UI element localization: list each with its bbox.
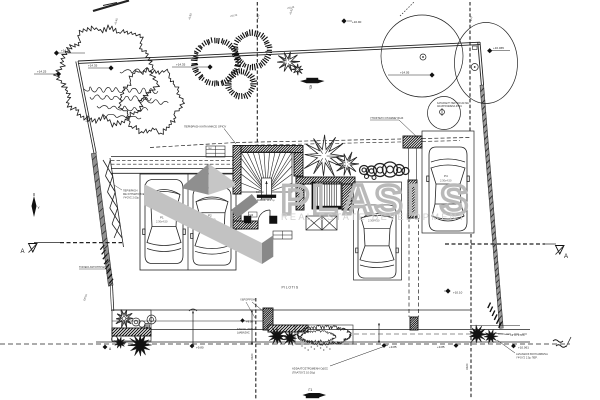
svg-text:ΑΝΑΡΡΙΧΩΜΕΝΑ ΦΥΤΑ: ΑΝΑΡΡΙΧΩΜΕΝΑ ΦΥΤΑ [437,105,462,108]
svg-text:+16.90: +16.90 [352,20,362,24]
svg-text:ΛΙΓΟΥΣΤΡΑ: ΛΙΓΟΥΣΤΡΑ [510,333,525,337]
svg-text:ΤΟΙΧΕΙΟ ΑΝΤΙΣΤΗΡΙΞΗΣ: ΤΟΙΧΕΙΟ ΑΝΤΙΣΤΗΡΙΞΗΣ [79,266,108,269]
svg-text:+14.95: +14.95 [61,49,71,53]
svg-text:+10.061: +10.061 [518,346,529,350]
svg-text:ΥΠΟΣΤΕΓΟ ΣΤΑΘΜΕΥΣΗΣ: ΥΠΟΣΤΕΓΟ ΣΤΑΘΜΕΥΣΗΣ [370,116,404,120]
svg-text:+14.35: +14.35 [88,64,98,68]
svg-text:P1: P1 [160,216,164,220]
svg-text:+14.05: +14.05 [400,71,410,75]
svg-text:2.30x4.50: 2.30x4.50 [156,220,168,224]
svg-text:ΥΨΟΥΣ 2.5μ ΠΕΡ.: ΥΨΟΥΣ 2.5μ ΠΕΡ. [516,356,538,360]
svg-text:ΥΨΟΥΣ 2.00μ: ΥΨΟΥΣ 2.00μ [123,197,139,200]
svg-text:ΒΟΗΘ.: ΒΟΗΘ. [256,190,265,194]
svg-text:+16.065: +16.065 [493,46,504,50]
svg-text:ΑΙΛΑΝΘΟΣ ΒΟΥΚΑΜΒΙΛΙΑ: ΑΙΛΑΝΘΟΣ ΒΟΥΚΑΜΒΙΛΙΑ [516,352,548,356]
svg-text:ΟΔΟΣ: ΟΔΟΣ [251,353,254,360]
svg-text:ΟΔΟΣ: ΟΔΟΣ [466,363,469,370]
svg-text:VΦ: VΦ [250,214,254,217]
svg-text:REAL ESTATE DEVELOPMENT: REAL ESTATE DEVELOPMENT [281,212,466,222]
svg-text:(ΠΛΑΤΟΥΣ 10.00μ): (ΠΛΑΤΟΥΣ 10.00μ) [292,371,315,375]
svg-text:PILOTIS: PILOTIS [282,286,299,290]
svg-text:Γ1: Γ1 [309,388,313,392]
svg-text:Κ.Θ: Κ.Θ [469,16,473,21]
svg-text:+9.90: +9.90 [246,320,254,324]
svg-text:+9.85: +9.85 [437,345,445,349]
svg-text:ΕΜΒΑΔ. 14.2 τμ: ΕΜΒΑΔ. 14.2 τμ [257,199,275,202]
svg-text:ΥΔΡΟΡΡΟΗ: ΥΔΡΟΡΡΟΗ [240,298,255,302]
svg-text:ΠΕΡΙΦΡΑΞΗ ΚΑΤΑ ΜΗΚΟΣ ΟΡΙΟΥ: ΠΕΡΙΦΡΑΞΗ ΚΑΤΑ ΜΗΚΟΣ ΟΡΙΟΥ [184,125,226,129]
svg-text:+14.25: +14.25 [37,70,47,74]
svg-text:+9.80: +9.80 [196,346,204,350]
svg-text:ΔΙΑΒΑΣΗΣ: ΔΙΑΒΑΣΗΣ [237,330,250,334]
svg-text:Κ.Θ: Κ.Θ [256,14,260,19]
svg-text:A: A [564,254,568,260]
svg-text:+9.85: +9.85 [389,345,397,349]
svg-text:ΑΣΦΑΛΤΟΣΤΡΩΜΕΝΗ ΟΔΟΣ: ΑΣΦΑΛΤΟΣΤΡΩΜΕΝΗ ΟΔΟΣ [292,367,328,371]
svg-text:+10.10: +10.10 [453,291,463,295]
svg-text:A: A [21,249,25,255]
svg-text:ΚΑΤΑΣΚΕΥΗ ΠΕΡΓΚΟΛΑΣ ΜΕ: ΚΑΤΑΣΚΕΥΗ ΠΕΡΓΚΟΛΑΣ ΜΕ [437,102,469,105]
svg-text:ΠΜ: ΠΜ [208,148,212,150]
svg-text:+14.35: +14.35 [176,63,186,67]
